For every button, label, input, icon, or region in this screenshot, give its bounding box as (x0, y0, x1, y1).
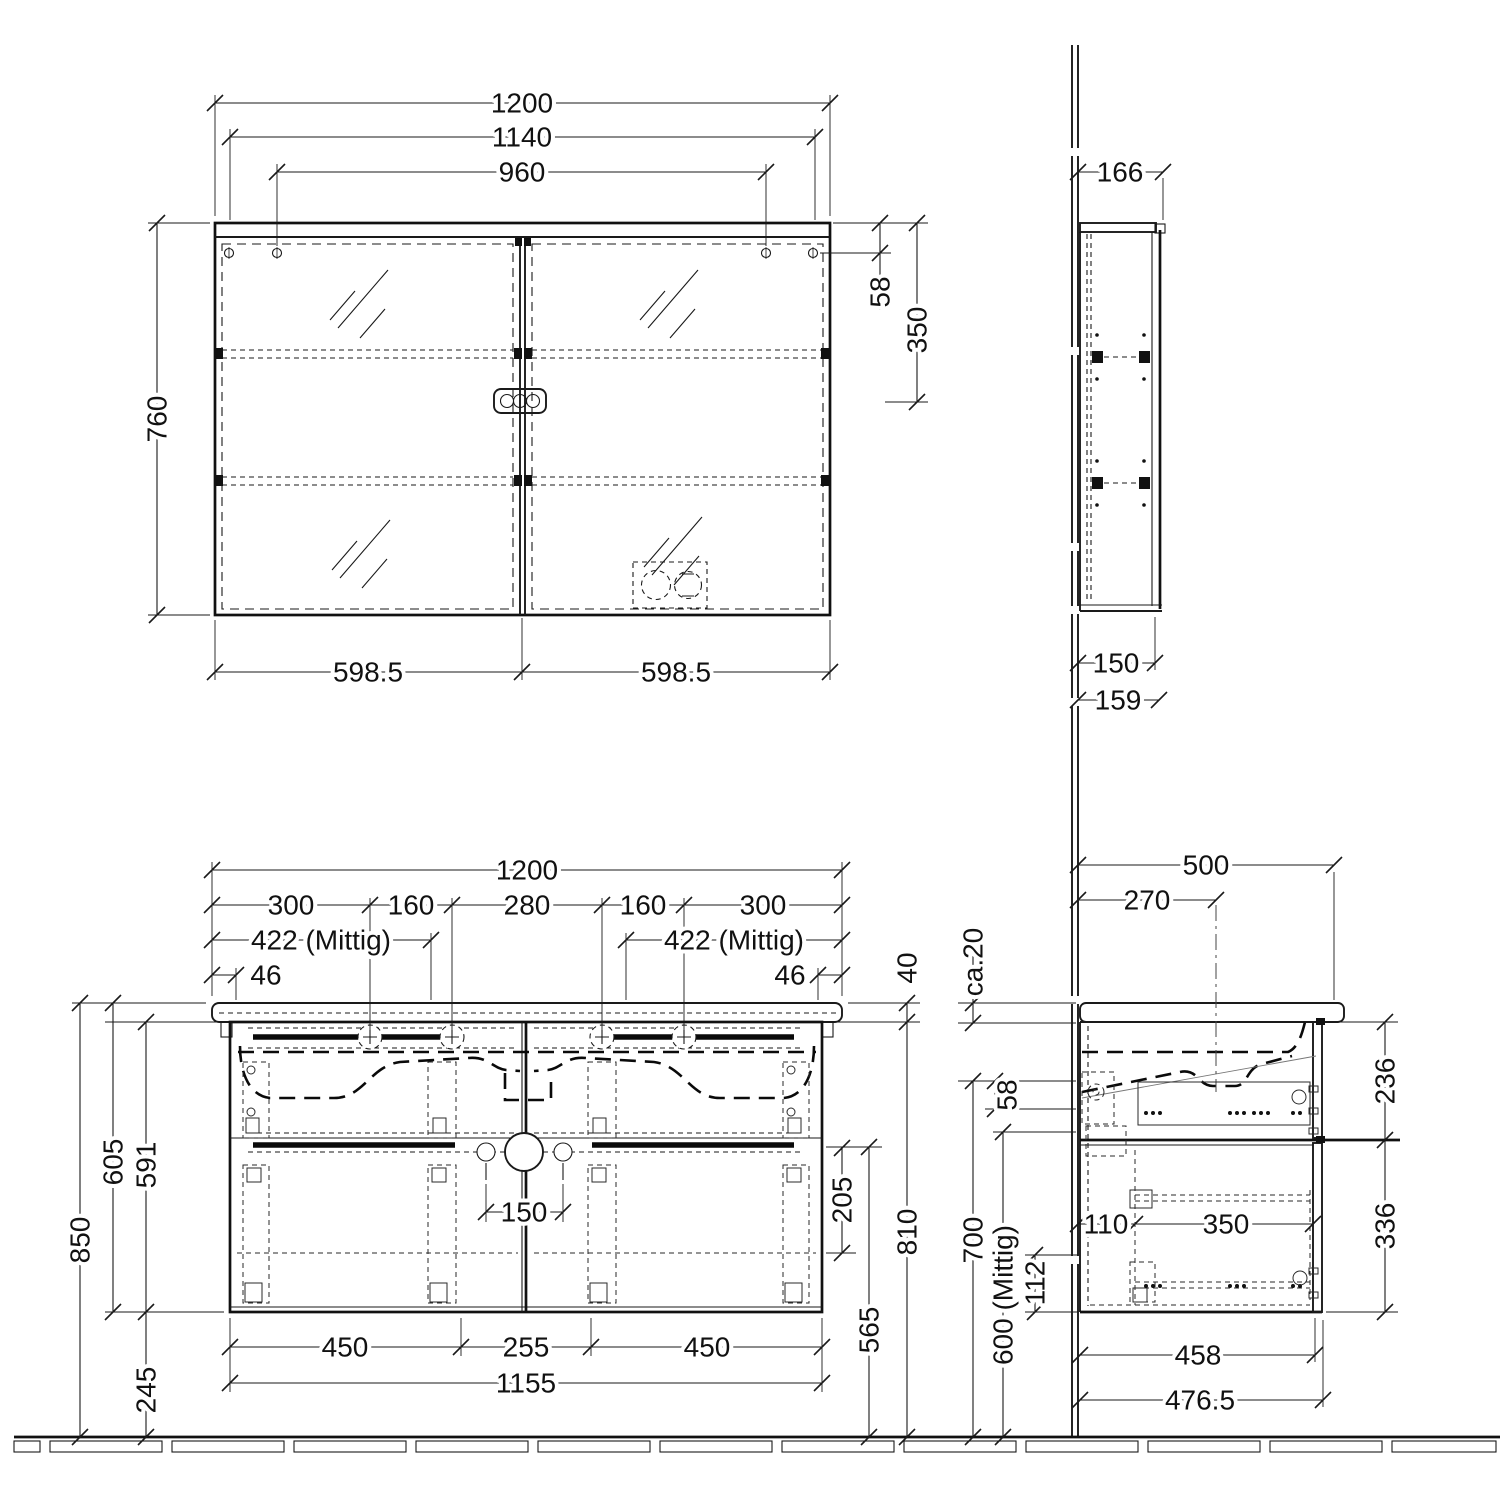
dim-bottom-center: 255 (503, 1332, 550, 1363)
dim-side-back-offset: 110 (1084, 1209, 1129, 1240)
dim-side-58: 58 (992, 1079, 1023, 1110)
dim-mirror-width-inner: 1140 (492, 122, 552, 153)
drain-cutouts (477, 1133, 572, 1180)
screw-holes (225, 247, 818, 259)
dim-side-tap-center: 270 (1124, 885, 1171, 916)
dim-edge-right: 46 (774, 960, 805, 991)
mirror-front-view (214, 223, 830, 615)
drawer-hardware-upper-detail (246, 1066, 801, 1133)
socket-outlet (633, 562, 707, 608)
floor-tiles (14, 1441, 1496, 1452)
dim-edge-left: 46 (250, 960, 281, 991)
technical-drawing-page: 1200 1140 960 760 58 350 598.5 598.5 (0, 0, 1500, 1500)
drawer-front-upper (1313, 1022, 1322, 1138)
floor-line (14, 1437, 1500, 1452)
dim-mirror-depth-door: 159 (1095, 685, 1142, 716)
dim-bottom-left: 450 (322, 1332, 369, 1363)
dim-mirror-width-screws: 960 (499, 157, 546, 188)
mirror-front-dimensions: 1200 1140 960 760 58 350 598.5 598.5 (142, 88, 933, 688)
dim-mirror-shelf-top: 350 (902, 307, 933, 354)
drawer-hardware-lower-detail (245, 1168, 802, 1302)
dim-bottom-right: 450 (684, 1332, 731, 1363)
dim-basin-thickness: 40 (892, 952, 923, 983)
dim-height-cabinet: 591 (131, 1142, 162, 1189)
vanity-front-view (212, 1003, 842, 1312)
dim-side-inner-lower: 336 (1370, 1203, 1401, 1250)
dim-tap-left: 422 (Mittig) (251, 925, 391, 956)
drawer-box-upper (1138, 1082, 1318, 1134)
dim-vanity-width-total: 1200 (496, 855, 558, 886)
dim-height-total: 850 (65, 1217, 96, 1264)
technical-drawing-svg: 1200 1140 960 760 58 350 598.5 598.5 (0, 0, 1500, 1500)
dim-chain-160r: 160 (620, 890, 667, 921)
drawer-front-lower (1313, 1143, 1322, 1312)
dim-mirror-height: 760 (142, 396, 173, 443)
dim-mirror-depth-body: 150 (1093, 648, 1140, 679)
dim-chain-160l: 160 (388, 890, 435, 921)
dim-drain-gap: 150 (501, 1197, 548, 1228)
mirror-side-dimensions: 166 150 159 (1070, 157, 1171, 716)
dim-side-depth-body: 458 (1175, 1340, 1222, 1371)
dim-side-rail-length: 350 (1203, 1209, 1250, 1240)
dim-side-drain-height: 600 (Mittig) (988, 1225, 1019, 1365)
vanity-side-view (1080, 905, 1400, 1312)
dim-side-depth-total: 500 (1183, 850, 1230, 881)
dim-side-clearance: 700 (958, 1217, 989, 1264)
dim-mirror-door-right: 598.5 (641, 657, 711, 688)
basin-profile (1082, 905, 1316, 1098)
mirror-side-view (1080, 223, 1165, 611)
mirror-glass-hatch (330, 270, 702, 588)
dim-mirror-door-left: 598.5 (333, 657, 403, 688)
dim-tap-right: 422 (Mittig) (664, 925, 804, 956)
dim-chain-300l: 300 (268, 890, 315, 921)
dim-side-depth-front: 476.5 (1165, 1385, 1235, 1416)
dim-side-pipe-offset: 112 (1020, 1261, 1051, 1306)
dim-mirror-width-total: 1200 (491, 88, 553, 119)
dim-height-underside: 810 (892, 1209, 923, 1256)
dim-divider-floor: 565 (854, 1307, 885, 1354)
shelf-clips (214, 238, 830, 486)
dim-chain-300r: 300 (740, 890, 787, 921)
dim-mirror-screw-top: 58 (865, 276, 896, 307)
dim-height-basin-bottom: 605 (98, 1139, 129, 1186)
dim-chain-280: 280 (504, 890, 551, 921)
dim-side-inner-upper: 236 (1370, 1058, 1401, 1105)
dim-side-top-gap: ca.20 (958, 928, 989, 997)
shelf-brackets (1092, 333, 1150, 507)
dim-drawer-upper: 205 (827, 1177, 858, 1224)
dim-bottom-total: 1155 (496, 1368, 556, 1399)
dim-floor-clearance: 245 (131, 1367, 162, 1414)
dim-mirror-depth-total: 166 (1097, 157, 1144, 188)
washbasin-console-side (1080, 1003, 1344, 1022)
vanity-side-dimensions: 500 270 ca.20 58 700 600 (Mittig) 112 11… (958, 850, 1401, 1446)
